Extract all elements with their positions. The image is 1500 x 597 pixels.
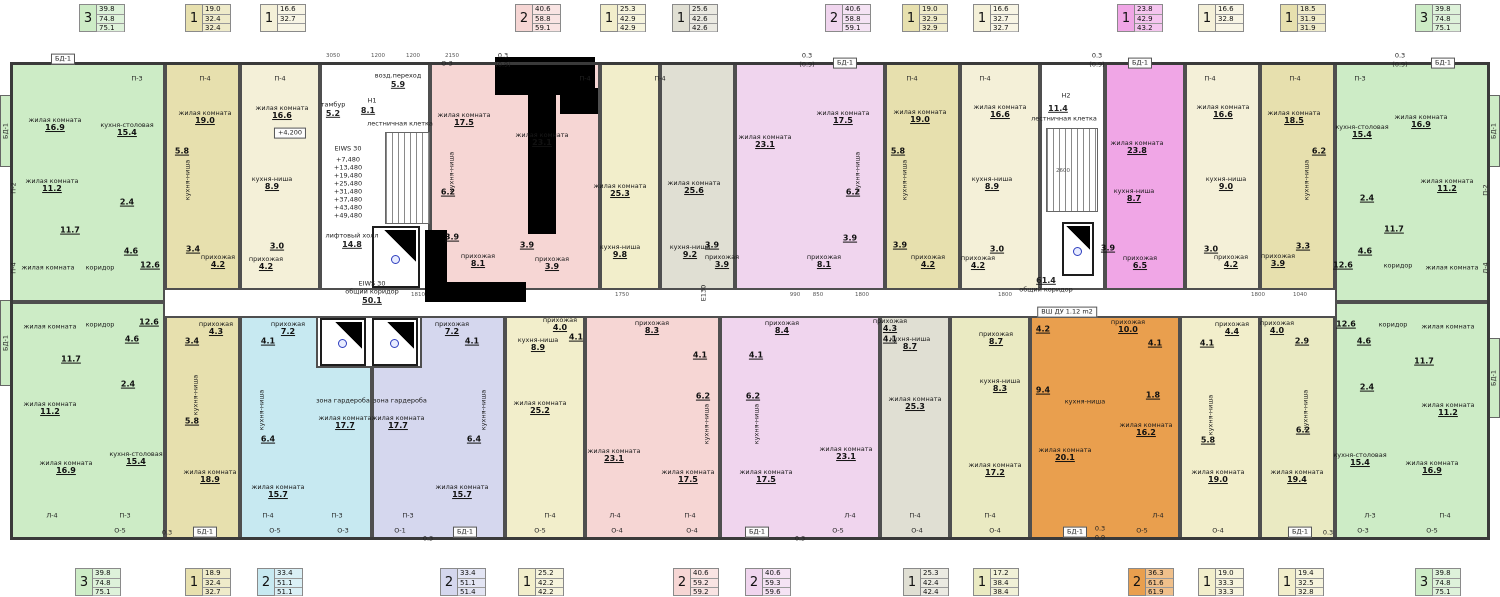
- legend-area-value: 42.9: [618, 24, 645, 33]
- room-label: зона гардероба: [316, 397, 370, 404]
- room-label: кухня-столовая15.4: [1335, 124, 1388, 140]
- apartment-rooms-count: 1: [974, 5, 991, 31]
- plan-annotation: О-5: [114, 528, 126, 535]
- room-label: 2.4: [1360, 195, 1374, 204]
- legend-area-value: 40.6: [843, 5, 870, 15]
- room-label: жилая комната11.2: [1421, 402, 1474, 418]
- legend-area-value: 59.2: [691, 588, 718, 597]
- room-label: кухня-ниша: [1065, 398, 1106, 405]
- room-label: 12.6: [1336, 321, 1356, 330]
- room-label: кухня-ниша8.9: [972, 176, 1013, 192]
- legend-area-value: 51.1: [275, 588, 302, 597]
- room-label: 6.2: [696, 393, 710, 402]
- legend-values: 39.874.875.1: [1433, 5, 1460, 31]
- legend-area-value: 42.9: [618, 15, 645, 25]
- apartment-b1: [10, 302, 165, 540]
- legend-area-value: 42.2: [536, 588, 563, 597]
- plan-annotation: П-4: [684, 513, 695, 520]
- apartment-rooms-count: 3: [80, 5, 97, 31]
- legend-area-value: 32.7: [991, 15, 1018, 25]
- plan-annotation: 8.1: [361, 107, 375, 115]
- apartment-rooms-count: 1: [601, 5, 618, 31]
- plan-annotation: П-4: [979, 76, 990, 83]
- plan-annotation: О-3: [337, 528, 349, 535]
- legend-area-value: 58.8: [533, 15, 560, 25]
- room-label: жилая комната17.5: [437, 112, 490, 128]
- plan-annotation: БД-1: [1491, 370, 1498, 386]
- legend-box-top: 240.658.859.1: [825, 4, 871, 32]
- plan-annotation: БД-1: [1063, 527, 1087, 538]
- apartment-rooms-count: 2: [746, 569, 763, 595]
- plan-annotation: EIWS 30: [335, 146, 362, 153]
- room-label: жилая комната15.7: [251, 484, 304, 500]
- room-label: кухня-ниша: [753, 404, 760, 445]
- legend-area-value: 25.3: [921, 569, 948, 579]
- stair-flight: [1046, 128, 1098, 212]
- legend-area-value: 43.2: [1135, 24, 1162, 33]
- plan-annotation: О-4: [989, 528, 1001, 535]
- legend-values: 25.242.242.2: [536, 569, 563, 595]
- legend-values: 16.632.732.7: [991, 5, 1018, 31]
- elevator-shaft: [372, 318, 418, 366]
- room-label: 4.2: [1036, 326, 1050, 335]
- plan-annotation: лестничная клетка: [1031, 116, 1097, 123]
- room-label: жилая комната25.2: [513, 400, 566, 416]
- legend-box-bottom: 233.451.151.1: [257, 568, 303, 596]
- legend-area-value: 40.6: [691, 569, 718, 579]
- plan-annotation: (0.9): [1392, 62, 1407, 69]
- apartment-rooms-count: 1: [673, 5, 690, 31]
- room-label: кухня-ниша8.3: [980, 378, 1021, 394]
- legend-area-value: 39.8: [1433, 5, 1460, 15]
- legend-values: 33.451.151.1: [275, 569, 302, 595]
- room-label: кухня-ниша: [1303, 160, 1310, 201]
- legend-area-value: 18.5: [1298, 5, 1325, 15]
- room-label: жилая комната: [1425, 264, 1478, 271]
- room-label: 9.4: [1036, 387, 1050, 396]
- plan-annotation: EIWS 30: [359, 281, 386, 288]
- room-label: коридор: [1379, 321, 1408, 328]
- legend-values: 36.361.661.9: [1146, 569, 1173, 595]
- plan-annotation: О-4: [911, 528, 923, 535]
- apartment-rooms-count: 2: [674, 569, 691, 595]
- plan-annotation: E130: [701, 285, 708, 302]
- room-label: 5.8: [185, 418, 199, 427]
- room-label: прихожая4.3: [199, 321, 233, 337]
- legend-area-value: 32.4: [203, 15, 230, 25]
- plan-annotation: 50.1: [362, 297, 382, 305]
- legend-box-top: 125.642.642.6: [672, 4, 718, 32]
- room-label: 3.0: [270, 243, 284, 252]
- room-label: жилая комната15.7: [435, 484, 488, 500]
- room-label: жилая комната17.7: [318, 415, 371, 431]
- legend-area-value: 16.6: [991, 5, 1018, 15]
- room-label: жилая комната: [21, 264, 74, 271]
- legend-box-top: 125.342.942.9: [600, 4, 646, 32]
- room-label: 12.6: [139, 319, 159, 328]
- room-label: прихожая7.2: [271, 321, 305, 337]
- room-label: прихожая4.3: [873, 318, 907, 334]
- plan-annotation: +25,480: [334, 181, 362, 188]
- plan-annotation: О-4: [611, 528, 623, 535]
- legend-box-top: 116.632.732.7: [973, 4, 1019, 32]
- room-label: 12.6: [1333, 262, 1353, 271]
- apartment-rooms-count: 1: [186, 5, 203, 31]
- legend-area-value: 25.6: [690, 5, 717, 15]
- apartment-b2: [165, 316, 240, 540]
- room-label: жилая комната19.0: [1191, 469, 1244, 485]
- room-label: 3.3: [1296, 243, 1310, 252]
- plan-annotation: 61.4: [1036, 277, 1056, 285]
- legend-area-value: 19.4: [1296, 569, 1323, 579]
- room-label: жилая комната16.9: [1394, 114, 1447, 130]
- room-label: жилая комната19.0: [893, 109, 946, 125]
- plan-annotation: О-5: [1426, 528, 1438, 535]
- legend-area-value: 19.0: [203, 5, 230, 15]
- legend-values: 40.659.359.6: [763, 569, 790, 595]
- legend-values: 39.874.875.1: [97, 5, 124, 31]
- room-label: жилая комната16.2: [1119, 422, 1172, 438]
- plan-annotation: 2600: [1056, 169, 1070, 175]
- legend-area-value: 32.7: [278, 15, 305, 25]
- room-label: кухня-ниша: [480, 390, 487, 431]
- plan-annotation: П-4: [906, 76, 917, 83]
- room-label: кухня-ниша: [854, 152, 861, 193]
- plan-annotation: +31,480: [334, 189, 362, 196]
- plan-annotation: О-1: [394, 528, 406, 535]
- plan-annotation: 0.3: [498, 53, 508, 60]
- legend-area-value: 59.3: [763, 579, 790, 589]
- plan-annotation: тамбур: [321, 102, 346, 109]
- room-label: 11.7: [1384, 226, 1404, 235]
- void-shape: [428, 282, 526, 302]
- legend-area-value: 40.6: [533, 5, 560, 15]
- legend-values: 18.932.432.7: [203, 569, 230, 595]
- plan-annotation: 0.3: [162, 530, 172, 537]
- legend-values: 23.842.943.2: [1135, 5, 1162, 31]
- legend-area-value: 58.8: [843, 15, 870, 25]
- legend-values: 39.874.875.1: [93, 569, 120, 595]
- legend-area-value: 16.6: [1216, 5, 1243, 15]
- plan-annotation: О-3: [1357, 528, 1369, 535]
- room-label: 4.1: [1200, 340, 1214, 349]
- plan-annotation: +7,480: [336, 157, 360, 164]
- plan-annotation: О-4: [1212, 528, 1224, 535]
- plan-annotation: 1800: [1251, 293, 1265, 299]
- room-label: прихожая4.0: [1260, 320, 1294, 336]
- legend-area-value: 31.9: [1298, 24, 1325, 33]
- plan-annotation: Л-4: [46, 513, 57, 520]
- legend-values: 18.531.931.9: [1298, 5, 1325, 31]
- plan-annotation: БД-1: [833, 58, 857, 69]
- plan-annotation: 0.3: [795, 536, 805, 543]
- room-label: прихожая6.5: [1123, 255, 1157, 271]
- legend-area-value: 36.3: [1146, 569, 1173, 579]
- legend-area-value: 38.4: [991, 579, 1018, 589]
- room-label: прихожая3.9: [535, 256, 569, 272]
- legend-values: 33.451.151.4: [458, 569, 485, 595]
- room-label: зона гардероба: [373, 397, 427, 404]
- plan-annotation: общий коридор: [345, 289, 398, 296]
- room-label: кухня-ниша8.9: [518, 337, 559, 353]
- plan-annotation: П-4: [654, 76, 665, 83]
- plan-annotation: лестничная клетка: [367, 121, 433, 128]
- legend-values: 17.238.438.4: [991, 569, 1018, 595]
- plan-annotation: 1040: [1293, 293, 1307, 299]
- apartment-b7: [720, 316, 880, 540]
- room-label: прихожая4.2: [961, 255, 995, 271]
- legend-values: 16.632.7: [278, 5, 305, 31]
- room-label: 2.4: [121, 381, 135, 390]
- room-label: 3.4: [186, 246, 200, 255]
- plan-annotation: О-3: [441, 61, 453, 68]
- legend-area-value: 32.4: [203, 579, 230, 589]
- legend-area-value: 51.1: [458, 579, 485, 589]
- legend-area-value: 59.6: [763, 588, 790, 597]
- room-label: коридор: [1384, 262, 1413, 269]
- plan-annotation: 5.9: [391, 81, 405, 89]
- legend-area-value: 39.8: [1433, 569, 1460, 579]
- room-label: жилая комната23.8: [1110, 140, 1163, 156]
- legend-box-top: 118.531.931.9: [1280, 4, 1326, 32]
- plan-annotation: 850: [813, 293, 824, 299]
- room-label: жилая комната20.1: [1038, 447, 1091, 463]
- apartment-rooms-count: 3: [1416, 569, 1433, 595]
- apartment-rooms-count: 1: [903, 5, 920, 31]
- room-label: жилая комната: [1421, 323, 1474, 330]
- room-label: прихожая4.0: [543, 317, 577, 333]
- legend-area-value: 38.4: [991, 588, 1018, 597]
- room-label: прихожая10.0: [1111, 319, 1145, 335]
- plan-annotation: +49,480: [334, 213, 362, 220]
- room-label: жилая комната25.6: [667, 180, 720, 196]
- legend-area-value: 42.9: [1135, 15, 1162, 25]
- room-label: 3.9: [445, 234, 459, 243]
- legend-area-value: 31.9: [1298, 15, 1325, 25]
- plan-annotation: 1750: [615, 293, 629, 299]
- plan-annotation: П-4: [1289, 76, 1300, 83]
- room-label: жилая комната11.2: [1420, 178, 1473, 194]
- room-label: 4.1: [261, 338, 275, 347]
- room-label: прихожая8.4: [765, 320, 799, 336]
- legend-area-value: 51.1: [275, 579, 302, 589]
- legend-values: 25.342.942.9: [618, 5, 645, 31]
- plan-annotation: О-5: [832, 528, 844, 535]
- room-label: кухня-ниша8.7: [1114, 188, 1155, 204]
- room-label: кухня-ниша9.0: [1206, 176, 1247, 192]
- room-label: жилая комната18.9: [183, 469, 236, 485]
- plan-annotation: (0.9): [1089, 62, 1104, 69]
- legend-area-value: 40.6: [763, 569, 790, 579]
- legend-area-value: 32.8: [1216, 15, 1243, 25]
- elevator-shaft: [1062, 222, 1094, 276]
- room-label: прихожая4.2: [249, 256, 283, 272]
- legend-area-value: 16.6: [278, 5, 305, 15]
- legend-values: 19.032.932.9: [920, 5, 947, 31]
- room-label: кухня-ниша: [901, 160, 908, 201]
- plan-annotation: П-4: [274, 76, 285, 83]
- legend-values: 25.342.442.4: [921, 569, 948, 595]
- plan-annotation: П-4: [544, 513, 555, 520]
- plan-annotation: 1800: [998, 293, 1012, 299]
- legend-area-value: 39.8: [97, 5, 124, 15]
- apartment-rooms-count: 2: [441, 569, 458, 595]
- plan-annotation: 990: [790, 293, 801, 299]
- room-label: 3.9: [1101, 245, 1115, 254]
- plan-annotation: 1800: [855, 293, 869, 299]
- plan-annotation: П-3: [1354, 76, 1365, 83]
- plan-annotation: БД-1: [1128, 58, 1152, 69]
- room-label: прихожая8.1: [807, 254, 841, 270]
- legend-box-bottom: 125.342.442.4: [903, 568, 949, 596]
- legend-values: 19.032.432.4: [203, 5, 230, 31]
- legend-box-bottom: 240.659.259.2: [673, 568, 719, 596]
- room-label: жилая комната16.9: [1405, 460, 1458, 476]
- plan-annotation: БД-1: [3, 335, 10, 351]
- legend-box-top: 119.032.432.4: [185, 4, 231, 32]
- room-label: кухня-ниша9.8: [600, 244, 641, 260]
- plan-annotation: П-4: [984, 513, 995, 520]
- plan-annotation: 1200: [371, 54, 385, 60]
- legend-area-value: 33.4: [275, 569, 302, 579]
- room-label: жилая комната23.1: [819, 446, 872, 462]
- room-label: прихожая4.2: [201, 254, 235, 270]
- legend-values: 39.874.875.1: [1433, 569, 1460, 595]
- room-label: жилая комната23.1: [738, 134, 791, 150]
- plan-annotation: +37,480: [334, 197, 362, 204]
- room-label: жилая комната25.3: [593, 183, 646, 199]
- plan-annotation: П-3: [119, 513, 130, 520]
- apartment-rooms-count: 1: [1199, 569, 1216, 595]
- plan-annotation: БД-1: [1491, 123, 1498, 139]
- legend-area-value: 42.2: [536, 579, 563, 589]
- room-label: 3.9: [520, 242, 534, 251]
- room-label: 4.6: [124, 248, 138, 257]
- plan-annotation: 1810: [411, 293, 425, 299]
- room-label: прихожая4.4: [1215, 321, 1249, 337]
- room-label: прихожая4.2: [911, 254, 945, 270]
- room-label: прихожая3.9: [705, 254, 739, 270]
- room-label: 4.6: [125, 336, 139, 345]
- plan-annotation: 0.3: [1092, 53, 1102, 60]
- room-label: 2.9: [1295, 338, 1309, 347]
- plan-annotation: П-2: [1483, 184, 1490, 195]
- plan-annotation: возд.переход: [375, 73, 422, 80]
- apartment-b9: [950, 316, 1030, 540]
- legend-area-value: 74.8: [93, 579, 120, 589]
- apartment-rooms-count: 3: [1416, 5, 1433, 31]
- legend-box-bottom: 240.659.359.6: [745, 568, 791, 596]
- legend-area-value: 75.1: [1433, 588, 1460, 597]
- legend-area-value: 33.3: [1216, 579, 1243, 589]
- void-shape: [528, 92, 556, 234]
- room-label: коридор: [86, 321, 115, 328]
- room-label: жилая комната11.2: [23, 401, 76, 417]
- apartment-b11: [1180, 316, 1260, 540]
- room-label: 4.6: [1357, 338, 1371, 347]
- elevator-shaft: [320, 318, 366, 366]
- legend-area-value: 42.4: [921, 588, 948, 597]
- stair-flight: [385, 132, 430, 224]
- legend-area-value: 75.1: [1433, 24, 1460, 33]
- legend-values: 40.659.259.2: [691, 569, 718, 595]
- room-label: 4.1: [569, 334, 583, 343]
- legend-area-value: 42.6: [690, 24, 717, 33]
- plan-annotation: 0.3: [1095, 526, 1105, 533]
- room-label: 5.8: [1201, 437, 1215, 446]
- room-label: 6.2: [846, 189, 860, 198]
- plan-annotation: БД-1: [193, 527, 217, 538]
- legend-area-value: 32.9: [920, 15, 947, 25]
- legend-area-value: [278, 24, 305, 31]
- legend-box-bottom: 118.932.432.7: [185, 568, 231, 596]
- legend-area-value: 33.3: [1216, 588, 1243, 597]
- room-label: 2.4: [120, 199, 134, 208]
- room-label: прихожая4.2: [1214, 254, 1248, 270]
- room-label: 3.4: [185, 338, 199, 347]
- room-label: 2.4: [1360, 384, 1374, 393]
- legend-area-value: 75.1: [97, 24, 124, 33]
- room-label: жилая комната16.6: [973, 104, 1026, 120]
- legend-area-value: 25.3: [618, 5, 645, 15]
- plan-annotation: +4,200: [274, 128, 306, 139]
- room-label: жилая комната17.5: [739, 469, 792, 485]
- room-label: прихожая3.9: [1261, 253, 1295, 269]
- room-label: 4.1: [1148, 340, 1162, 349]
- plan-annotation: 0.9: [1095, 535, 1105, 542]
- room-label: 3.9: [705, 242, 719, 251]
- plan-annotation: Л-3: [1364, 513, 1375, 520]
- legend-area-value: 51.4: [458, 588, 485, 597]
- room-label: жилая комната18.5: [1267, 110, 1320, 126]
- floor-plan-canvas: жилая комната16.9кухня-столовая15.4жилая…: [0, 0, 1500, 597]
- plan-annotation: Л-4: [609, 513, 620, 520]
- legend-area-value: [1216, 24, 1243, 31]
- room-label: кухня-столовая15.4: [109, 451, 162, 467]
- room-label: жилая комната16.6: [255, 105, 308, 121]
- legend-area-value: 19.0: [920, 5, 947, 15]
- legend-area-value: 74.8: [1433, 15, 1460, 25]
- apartment-rooms-count: 1: [261, 5, 278, 31]
- room-label: 3.9: [843, 235, 857, 244]
- room-label: кухня-ниша: [1302, 390, 1309, 431]
- legend-area-value: 17.2: [991, 569, 1018, 579]
- plan-annotation: 0.3: [423, 536, 433, 543]
- plan-annotation: О-5: [534, 528, 546, 535]
- room-label: 5.8: [175, 148, 189, 157]
- plan-annotation: Н2: [1061, 93, 1070, 100]
- plan-annotation: 0.3: [1323, 530, 1333, 537]
- legend-area-value: 32.7: [991, 24, 1018, 33]
- plan-annotation: П-3: [131, 76, 142, 83]
- legend-area-value: 39.8: [93, 569, 120, 579]
- room-label: прихожая8.1: [461, 253, 495, 269]
- room-label: жилая комната19.0: [178, 110, 231, 126]
- legend-box-bottom: 119.432.532.8: [1278, 568, 1324, 596]
- legend-area-value: 32.4: [203, 24, 230, 33]
- plan-annotation: +43,480: [334, 205, 362, 212]
- room-label: 12.6: [140, 262, 160, 271]
- room-label: 11.7: [1414, 358, 1434, 367]
- room-label: жилая комната17.7: [371, 415, 424, 431]
- apartment-rooms-count: 3: [76, 569, 93, 595]
- legend-area-value: 59.2: [691, 579, 718, 589]
- plan-annotation: БД-1: [1288, 527, 1312, 538]
- room-label: 4.1: [465, 338, 479, 347]
- room-label: кухня-ниша: [448, 152, 455, 193]
- room-label: жилая комната11.2: [25, 178, 78, 194]
- room-label: жилая комната16.9: [39, 460, 92, 476]
